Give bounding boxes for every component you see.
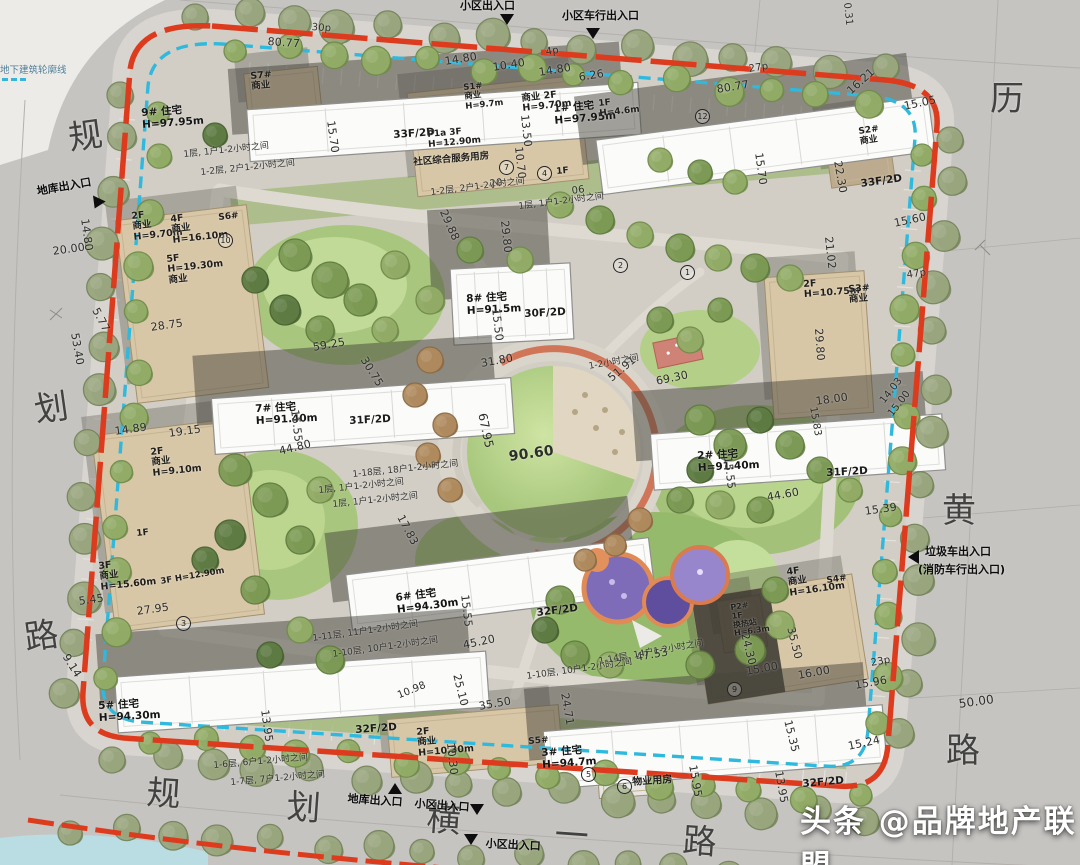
commercial-label: 1F: [136, 529, 149, 540]
commercial-label: S5#: [528, 736, 549, 748]
dim-label: 10.70: [512, 146, 528, 180]
entrance-label: 小区车行出入口: [562, 10, 639, 22]
dim-label: 15.55: [458, 594, 474, 628]
dim-label: 80.77: [267, 36, 300, 51]
entrance-arrow-icon: [464, 834, 478, 845]
entrance-arrow-icon: [470, 804, 484, 815]
dim-label: 30p: [311, 22, 331, 35]
dim-label: 21.02: [822, 236, 838, 270]
commercial-label: 2F 商业 H=9.10m: [150, 443, 202, 479]
commercial-label: S1# 商业 H=9.7m: [463, 80, 504, 112]
road-name-char: 规: [66, 115, 105, 157]
badge: 3: [176, 616, 191, 631]
legend-dash-icon: [2, 78, 26, 81]
entrance-arrow-icon: [586, 28, 600, 39]
dim-label: 0.31: [841, 2, 855, 26]
building-label: 7# 住宅 H=91.40m: [255, 401, 318, 428]
entrance-arrow-icon: [388, 783, 402, 794]
commercial-label: S2# 商业: [858, 125, 881, 147]
floors-label: 30F/2D: [524, 307, 566, 321]
badge: 7: [499, 160, 514, 175]
watermark: 头条 @品牌地产联盟: [800, 796, 1080, 865]
road-name-char: 规: [145, 774, 182, 814]
badge: 6: [617, 779, 632, 794]
commercial-label: 3F 商业 H=15.60m: [98, 556, 157, 593]
badge: 5: [581, 767, 596, 782]
commercial-label: 5F H=19.30m 商业: [166, 249, 225, 286]
dim-label: 4p: [545, 45, 560, 58]
dim-label: 15.50: [489, 308, 505, 342]
dim-label: 13.50: [518, 114, 534, 148]
dim-label: 15.55: [721, 456, 737, 490]
site-plan-page: 规 划 路 历 黄 路 规 划 横 一 路 地下建筑轮廓线 小区出入口 小区车行…: [0, 0, 1080, 865]
road-name-char: 划: [32, 387, 71, 429]
road-name-char: 一: [553, 816, 590, 856]
entrance-label: (消防车行出入口): [918, 564, 1005, 576]
badge: 2: [613, 258, 628, 273]
entrance-label: 小区出入口: [460, 0, 515, 12]
dim-label: 29.80: [812, 328, 827, 361]
road-name-char: 路: [22, 615, 61, 657]
badge: 10: [218, 233, 233, 248]
floors-label: 31F/2D: [826, 466, 868, 480]
road-name-char: 路: [681, 822, 718, 862]
road-name-char: 划: [285, 788, 322, 828]
road-name-char: 路: [946, 732, 980, 770]
dim-label: 29.80: [498, 220, 514, 254]
commercial-label: S6#: [218, 212, 239, 224]
entrance-label: 垃圾车出入口: [925, 546, 991, 558]
building-label: 9# 住宅 H=97.95m: [141, 104, 204, 132]
commercial-label: 1F H=4.6m: [598, 96, 640, 120]
legend-underground-outline: 地下建筑轮廓线: [0, 66, 67, 77]
entrance-arrow-icon: [908, 550, 919, 564]
badge: 9: [727, 682, 742, 697]
badge: 4: [537, 166, 552, 181]
dim-label: 15.55: [288, 409, 304, 443]
road-name-char: 黄: [942, 492, 976, 530]
commercial-label: S3# 商业: [848, 284, 871, 306]
badge: 1: [680, 265, 695, 280]
commercial-label: 1F: [556, 167, 569, 178]
commercial-label: S7# 商业: [250, 70, 273, 93]
floors-label: 31F/2D: [349, 414, 391, 428]
badge: 12: [695, 109, 710, 124]
entrance-arrow-icon: [500, 14, 514, 25]
road-name-char: 历: [990, 80, 1024, 118]
building-label: 5# 住宅 H=94.30m: [98, 698, 161, 725]
dim-label: 10.30: [444, 742, 460, 776]
